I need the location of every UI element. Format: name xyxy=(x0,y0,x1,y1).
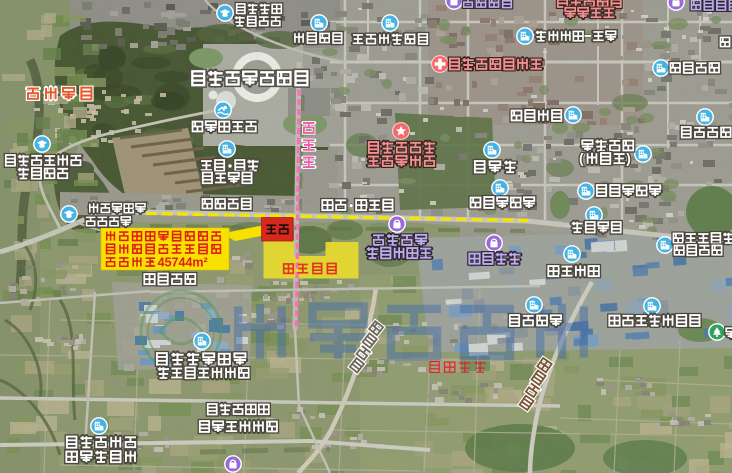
svg-text:: 45744m²: : 45744m² xyxy=(150,256,208,270)
svg-text:): ) xyxy=(626,151,631,166)
svg-text:(: ( xyxy=(579,151,584,166)
